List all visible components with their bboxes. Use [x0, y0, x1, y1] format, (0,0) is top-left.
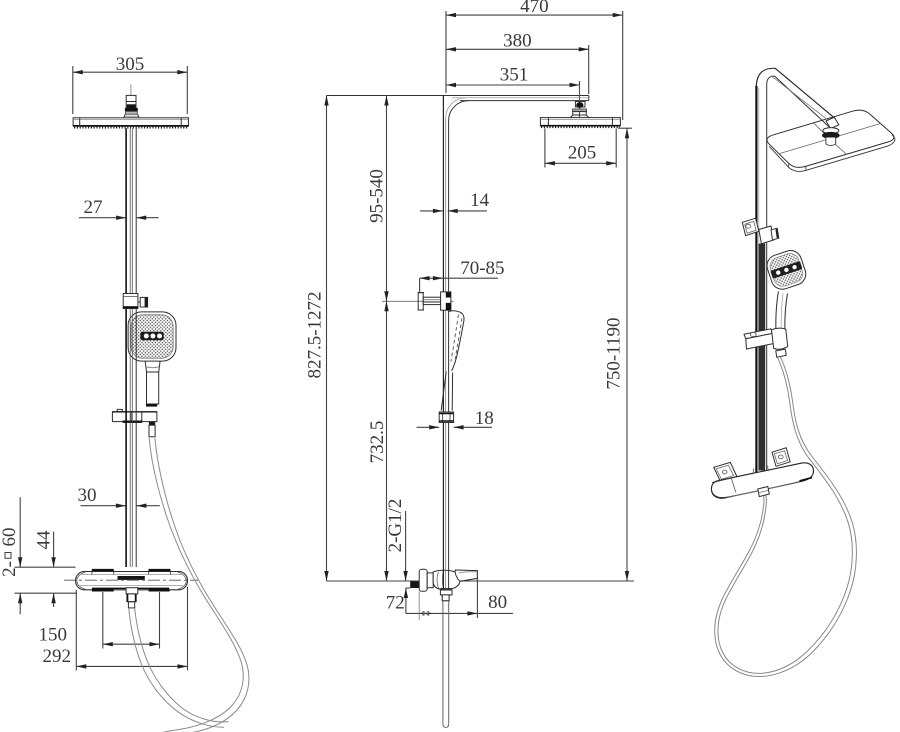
svg-text:72: 72: [386, 593, 405, 614]
svg-text:27: 27: [84, 197, 103, 218]
svg-text:351: 351: [500, 65, 529, 86]
svg-text:380: 380: [503, 31, 532, 52]
svg-text:470: 470: [520, 0, 549, 17]
svg-text:95-540: 95-540: [367, 169, 388, 223]
svg-text:827.5-1272: 827.5-1272: [305, 291, 326, 378]
svg-text:18: 18: [475, 408, 494, 429]
svg-text:80: 80: [488, 592, 507, 613]
svg-text:305: 305: [116, 54, 145, 75]
svg-text:30: 30: [78, 485, 97, 506]
svg-text:44: 44: [34, 530, 55, 550]
svg-text:750-1190: 750-1190: [604, 317, 625, 389]
svg-text:292: 292: [43, 646, 72, 667]
svg-text:732.5: 732.5: [367, 421, 388, 464]
svg-text:14: 14: [470, 190, 490, 211]
svg-text:2-: 2-: [0, 561, 20, 577]
svg-text:150: 150: [39, 625, 68, 646]
svg-text:205: 205: [568, 143, 597, 164]
svg-text:60: 60: [0, 528, 20, 547]
svg-text:2-G1/2: 2-G1/2: [385, 499, 406, 553]
svg-text:70-85: 70-85: [460, 258, 504, 279]
